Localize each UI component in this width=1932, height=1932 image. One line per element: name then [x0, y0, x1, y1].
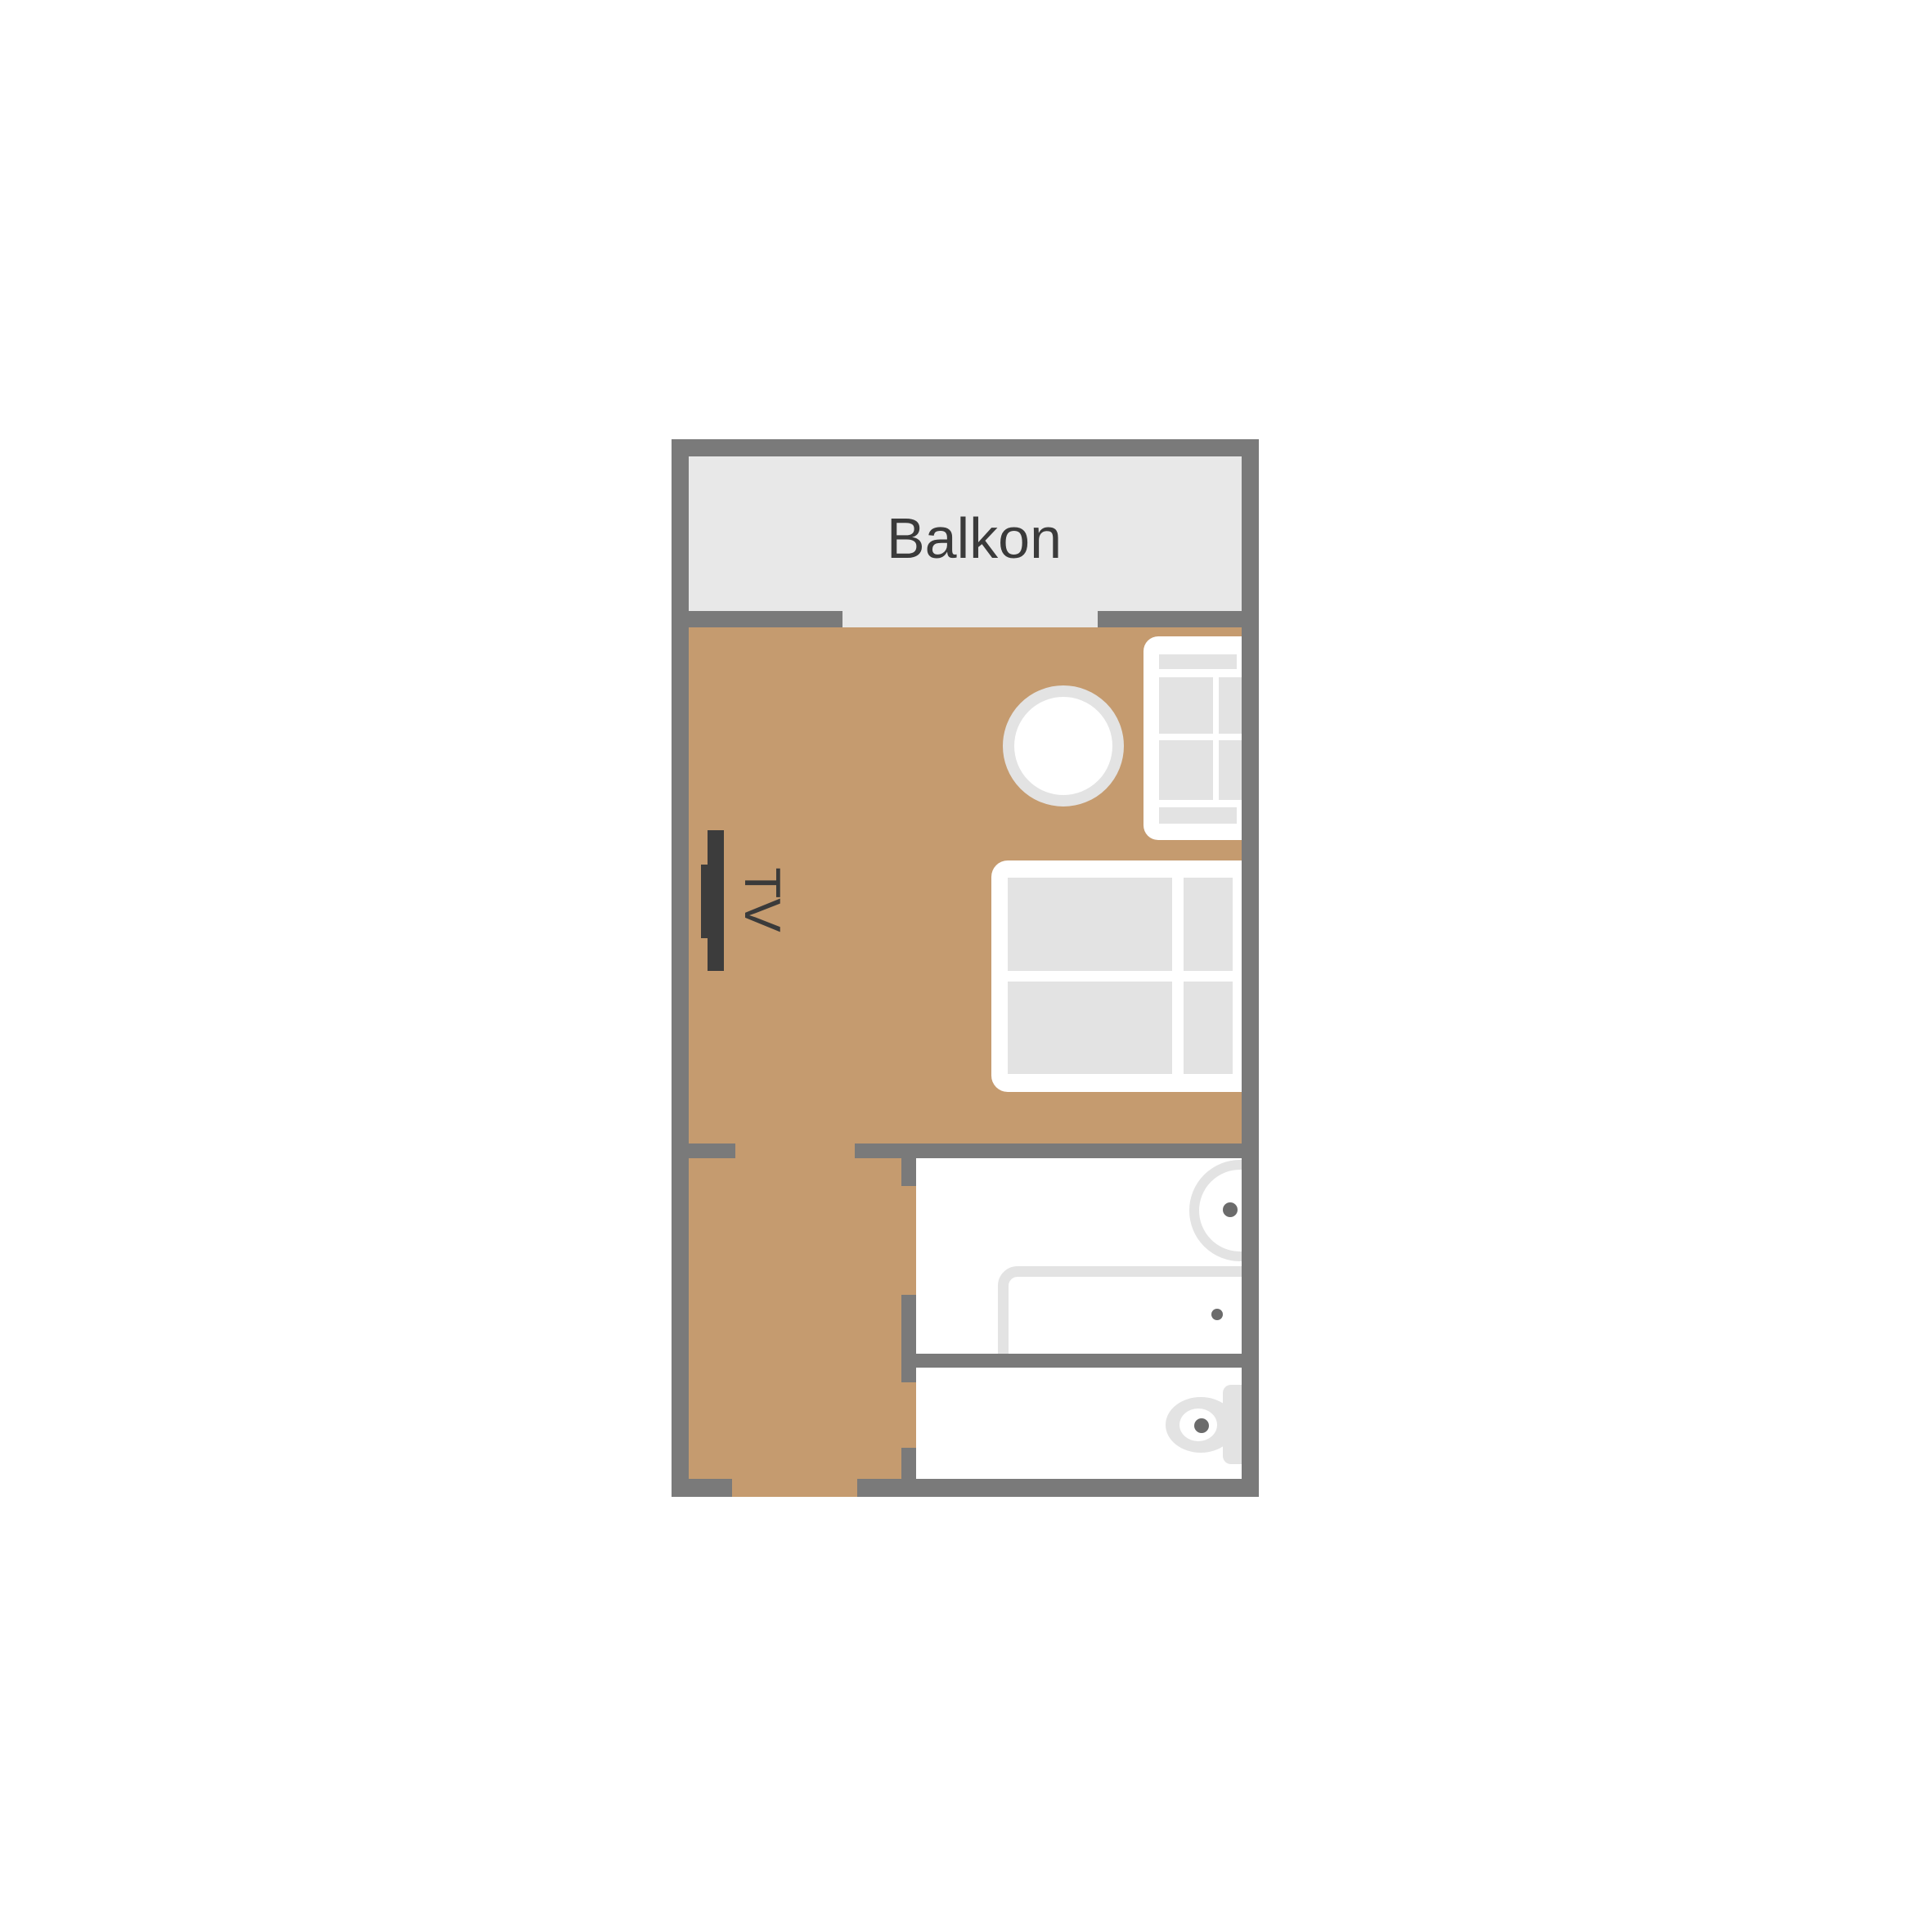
- toilet-drain-dot: [1194, 1418, 1209, 1433]
- armchair-seat-panel: [1159, 740, 1213, 800]
- double-bed: [991, 860, 1242, 1092]
- bed-pillow: [1184, 878, 1233, 971]
- bed-mattress-panel: [1008, 982, 1172, 1074]
- entrance-door-opening: [732, 1479, 857, 1497]
- armchair-back-panel: [1219, 740, 1242, 800]
- wc-floor: [916, 1368, 1242, 1479]
- tv-mount-icon: [701, 865, 708, 938]
- tv-icon: [708, 830, 724, 971]
- armchair-back-panel: [1219, 677, 1242, 734]
- sink-faucet-dot: [1223, 1202, 1238, 1217]
- floor-plan-image: Balkon TV: [0, 0, 1932, 1932]
- hallway-opening: [735, 1143, 855, 1158]
- bed-pillow: [1184, 982, 1233, 1074]
- balcony-label: Balkon: [811, 509, 1138, 568]
- bathtub-drain-dot: [1211, 1309, 1223, 1320]
- round-table: [1003, 685, 1124, 806]
- bathtub: [998, 1266, 1242, 1354]
- tv-label: TV: [735, 855, 788, 945]
- armchair: [1143, 636, 1242, 840]
- hallway-floor: [689, 1158, 901, 1479]
- armchair-armrest: [1159, 807, 1237, 824]
- wc-door-opening: [901, 1382, 916, 1448]
- bed-mattress-panel: [1008, 878, 1172, 971]
- armchair-seat-panel: [1159, 677, 1213, 734]
- balcony-door-opening: [842, 611, 1098, 627]
- armchair-armrest: [1159, 654, 1237, 669]
- bathroom-door-opening: [901, 1186, 916, 1295]
- bathroom-floor: [916, 1158, 1242, 1354]
- floor-plan: Balkon TV: [672, 439, 1259, 1497]
